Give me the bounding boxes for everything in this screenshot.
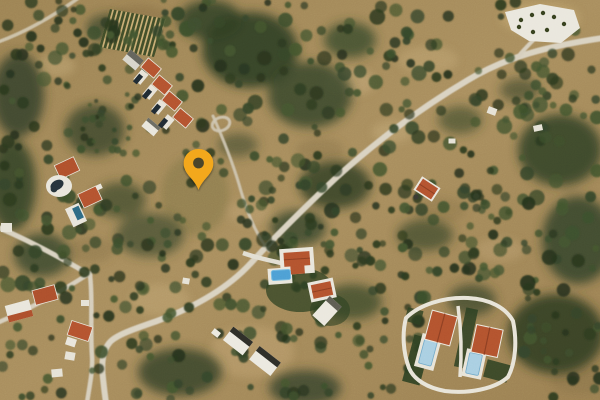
grain-overlay — [0, 0, 600, 400]
satellite-map-viewport[interactable] — [0, 0, 600, 400]
pin-hole — [193, 158, 204, 169]
aerial-photo[interactable] — [0, 0, 600, 400]
